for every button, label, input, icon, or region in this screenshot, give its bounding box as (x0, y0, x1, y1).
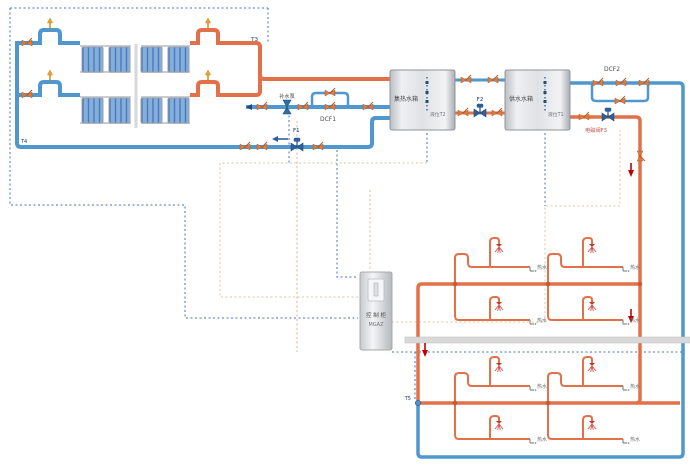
motor-valve-f2-icon (474, 104, 486, 117)
tank-sensor-label: 液位T1 (548, 111, 564, 118)
collector-hot-pipes (190, 30, 390, 95)
control-cabinet: 控 制 柜 MGAZ (360, 272, 392, 350)
shower-unit (453, 282, 537, 325)
tank-label: 集热水箱 (394, 95, 418, 103)
tap-label: 热水 (630, 264, 640, 271)
dcf2-label: DCF2 (604, 66, 620, 73)
shower-unit (546, 357, 630, 405)
air-vent-icon (205, 18, 210, 29)
tap-label: 热水 (537, 436, 547, 443)
pump-label: 补水泵 (279, 92, 295, 100)
collector-tank: 集热水箱 液位T2 (390, 70, 455, 130)
flow-arrow-icon (422, 343, 428, 357)
motor-valve-f3-icon (602, 108, 614, 121)
dcf1-bypass-pipe (312, 93, 348, 107)
shower-unit (453, 357, 537, 405)
shower-unit (453, 401, 537, 444)
inter-tank-piping (455, 75, 505, 117)
tap-label: 热水 (537, 317, 547, 324)
shower-unit (546, 401, 630, 444)
return-pipe (418, 83, 683, 457)
collector-field (17, 18, 390, 128)
valve-f3-label: 电磁阀F3 (585, 126, 607, 134)
solar-hot-water-schematic: 集热水箱 液位T2 供水水箱 液位T1 控 制 柜 MGAZ T3 T4 T5 … (0, 0, 690, 467)
shower-unit (546, 238, 630, 286)
tank-label: 供水水箱 (509, 95, 533, 103)
air-vent-icon (47, 70, 52, 81)
sensor-t5-label: T5 (404, 396, 411, 402)
dcf1-line (246, 88, 390, 114)
cabinet-label: 控 制 柜 (366, 311, 386, 319)
sensor-t3-label: T3 (250, 37, 258, 43)
cabinet-model-label: MGAZ (368, 322, 384, 328)
tank-sensor-label: 液位T2 (430, 111, 446, 118)
dcf2-return-loop (418, 78, 683, 457)
cabinet-handle (374, 283, 378, 296)
hot-riser-right (570, 117, 640, 403)
supply-tank: 供水水箱 液位T1 (505, 70, 570, 130)
inlet-arrow-icon (246, 104, 252, 110)
tap-label: 热水 (630, 383, 640, 390)
shower-unit (546, 282, 630, 325)
flow-arrow-icon (628, 163, 634, 177)
air-vent-icon (205, 70, 210, 81)
collector-divider (135, 44, 138, 128)
tap-label: 热水 (537, 264, 547, 271)
dcf1-label: DCF1 (320, 116, 336, 123)
schematic-canvas: 集热水箱 液位T2 供水水箱 液位T1 控 制 柜 MGAZ T3 T4 T5 … (0, 0, 690, 467)
tap-label: 热水 (630, 436, 640, 443)
collector-cold-pipes (17, 30, 80, 95)
air-vent-icon (47, 18, 52, 29)
sensor-t4-label: T4 (20, 139, 27, 145)
valve-f2-label: F2 (477, 97, 484, 103)
floor-divider (405, 337, 690, 343)
valve-f1-label: F1 (293, 128, 300, 134)
wiring-tan (220, 130, 620, 322)
flow-arrow-left-icon (272, 136, 288, 142)
tap-label: 热水 (630, 317, 640, 324)
pipe-junction (638, 282, 642, 286)
t5-junction (415, 400, 420, 405)
shower-unit (453, 238, 537, 286)
tap-label: 热水 (537, 383, 547, 390)
